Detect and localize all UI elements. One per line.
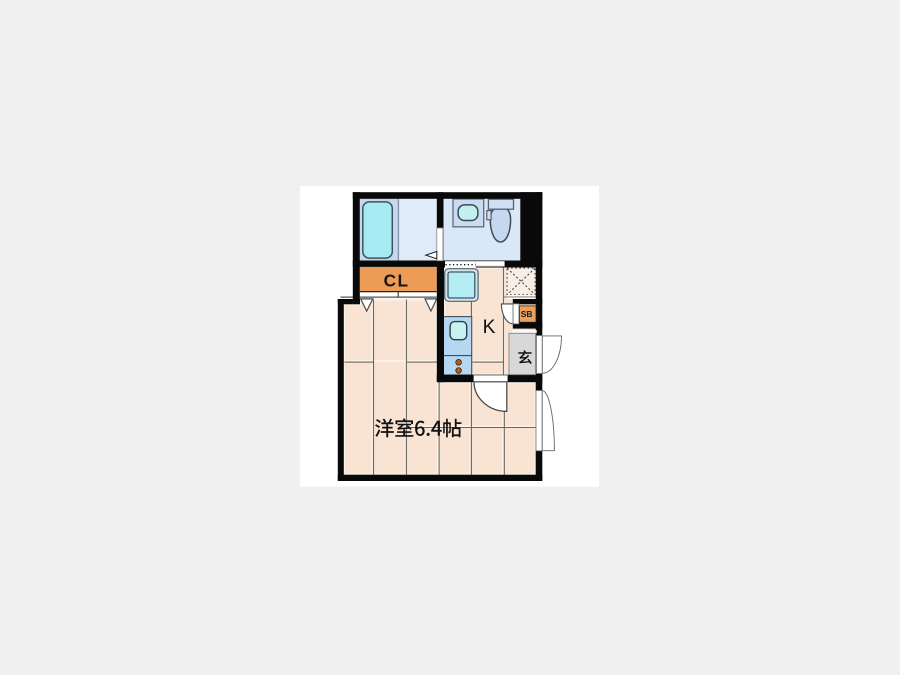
svg-text:SB: SB: [521, 309, 533, 319]
svg-text:K: K: [483, 317, 496, 338]
svg-text:CL: CL: [384, 271, 410, 291]
